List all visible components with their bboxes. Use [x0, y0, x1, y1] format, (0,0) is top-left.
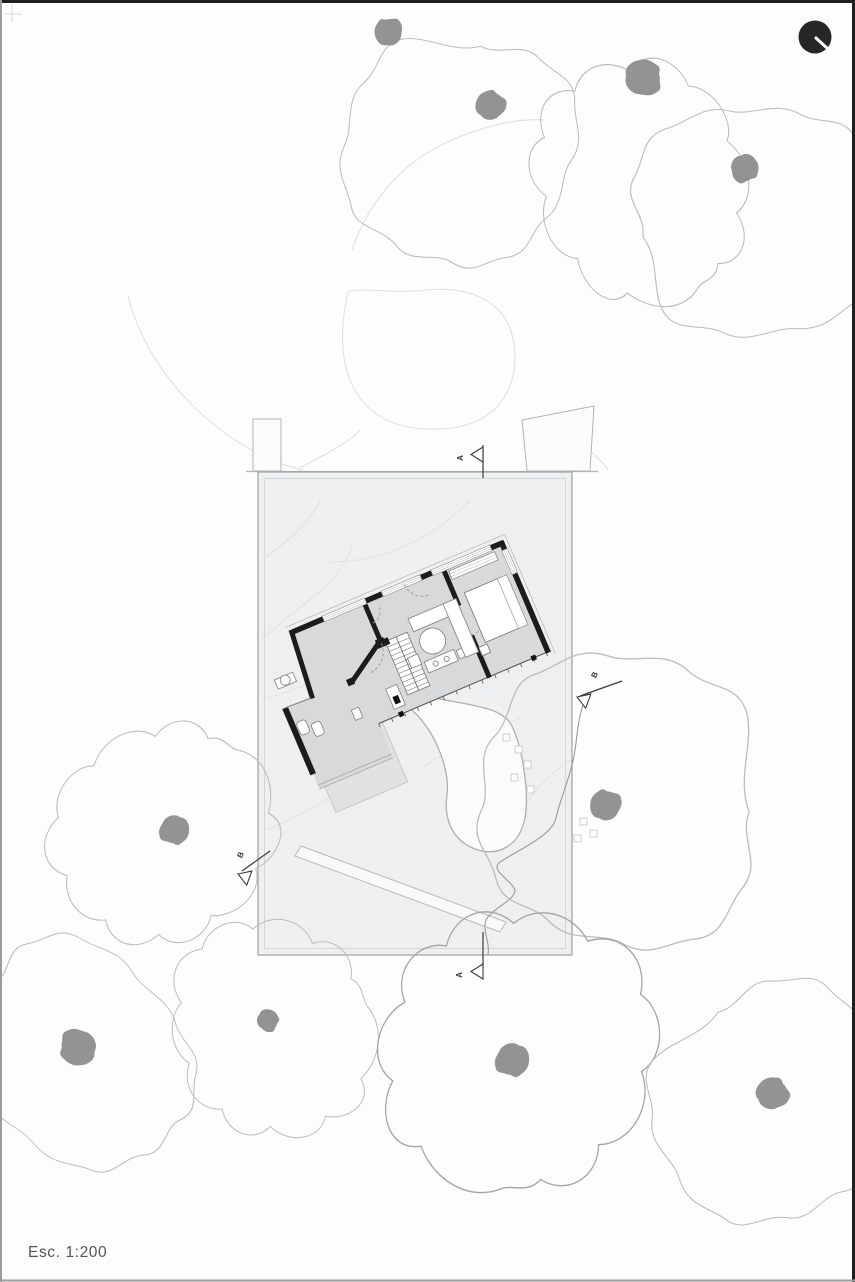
- site-plan-sheet: A A B B Esc. 1:200: [0, 0, 855, 1282]
- section-label-a-top: A: [456, 455, 465, 461]
- tree-trunk: [625, 59, 660, 95]
- site-plan-canvas: A A B B Esc. 1:200: [0, 0, 855, 1282]
- scale-label: Esc. 1:200: [28, 1244, 107, 1261]
- north-indicator: [799, 21, 832, 54]
- retaining-wall-left: [253, 419, 281, 471]
- tree-trunk: [374, 19, 402, 46]
- section-label-a-bottom: A: [455, 972, 464, 978]
